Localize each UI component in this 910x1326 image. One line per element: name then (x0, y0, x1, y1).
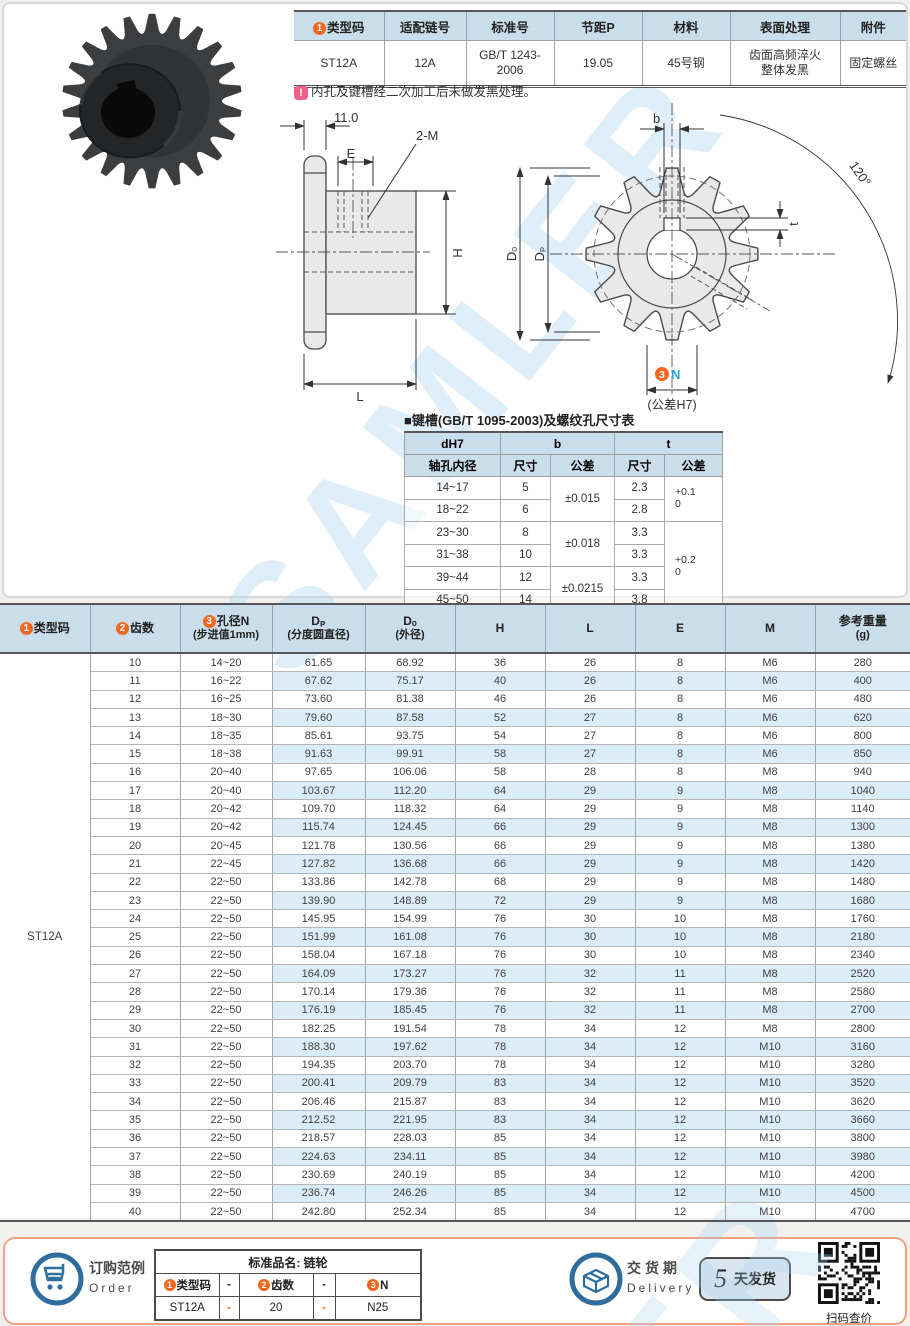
col-pitch: 节距P (554, 11, 642, 41)
dp-cell: 139.90 (272, 891, 365, 909)
bore-n-cell: 22~50 (180, 1129, 272, 1147)
bore-n-cell: 22~50 (180, 1001, 272, 1019)
table-row: 3222~50194.35203.70783412M103280 (0, 1056, 910, 1074)
bore-n-cell: 22~50 (180, 1111, 272, 1129)
dim-h-label: H (450, 248, 465, 257)
do-cell: 75.17 (365, 672, 455, 690)
t-size: 3.3 (615, 544, 665, 567)
l-cell: 34 (545, 1148, 635, 1166)
weight-cell: 3620 (815, 1093, 910, 1111)
order-dash: - (219, 1274, 239, 1297)
table-row: 2122~45127.82136.6866299M81420 (0, 855, 910, 873)
order-dash: - (313, 1297, 335, 1321)
do-cell: 167.18 (365, 946, 455, 964)
d-range: 23~30 (405, 522, 501, 545)
e-cell: 9 (635, 836, 725, 854)
dp-cell: 103.67 (272, 782, 365, 800)
col-accessory: 附件 (840, 11, 906, 41)
order-example-table: 标准品名: 链轮 1类型码 - 2齿数 - 3N ST12A - 20 - N2… (154, 1249, 422, 1321)
teeth-cell: 25 (90, 928, 180, 946)
weight-cell: 4500 (815, 1184, 910, 1202)
qr-code (818, 1242, 880, 1304)
t-size: 3.3 (615, 522, 665, 545)
do-cell: 179.36 (365, 983, 455, 1001)
h-cell: 85 (455, 1129, 545, 1147)
m-cell: M8 (725, 983, 815, 1001)
sprocket-photo-bore (101, 87, 155, 137)
m-cell: M6 (725, 727, 815, 745)
e-cell: 10 (635, 928, 725, 946)
table-row: 2422~50145.95154.99763010M81760 (0, 910, 910, 928)
m-cell: M10 (725, 1129, 815, 1147)
teeth-cell: 27 (90, 965, 180, 983)
col-type-code: 1类型码 (294, 11, 384, 41)
keyway-table-section: ■键槽(GB/T 1095-2003)及螺纹孔尺寸表 dH7 b t 轴孔内径 … (404, 410, 722, 613)
badge-1: 1 (313, 22, 326, 35)
order-v-type: ST12A (155, 1297, 219, 1321)
bore-n-cell: 20~45 (180, 836, 272, 854)
teeth-cell: 33 (90, 1074, 180, 1092)
weight-cell: 3660 (815, 1111, 910, 1129)
do-cell: 99.91 (365, 745, 455, 763)
col-dp: Dₚ(分度圆直径) (272, 604, 365, 653)
do-cell: 246.26 (365, 1184, 455, 1202)
table-row: 1620~4097.65106.0658288M8940 (0, 763, 910, 781)
m-cell: M8 (725, 836, 815, 854)
d-range: 39~44 (405, 567, 501, 590)
teeth-cell: 36 (90, 1129, 180, 1147)
m-cell: M8 (725, 763, 815, 781)
t-size: 2.3 (615, 477, 665, 500)
product-photo (14, 6, 264, 211)
dim-2m-label: 2-M (416, 128, 438, 143)
weight-cell: 4200 (815, 1166, 910, 1184)
do-cell: 148.89 (365, 891, 455, 909)
col-teeth: 2齿数 (90, 604, 180, 653)
b-size: 10 (501, 544, 551, 567)
l-cell: 32 (545, 1001, 635, 1019)
bore-n-cell: 22~50 (180, 1148, 272, 1166)
do-cell: 161.08 (365, 928, 455, 946)
weight-cell: 3280 (815, 1056, 910, 1074)
m-cell: M8 (725, 873, 815, 891)
e-cell: 8 (635, 727, 725, 745)
dp-cell: 188.30 (272, 1038, 365, 1056)
do-cell: 185.45 (365, 1001, 455, 1019)
do-cell: 81.38 (365, 690, 455, 708)
h-cell: 64 (455, 800, 545, 818)
table-row: 1920~42115.74124.4566299M81300 (0, 818, 910, 836)
m-cell: M8 (725, 965, 815, 983)
l-cell: 27 (545, 708, 635, 726)
weight-cell: 280 (815, 653, 910, 672)
keyway-row: 23~30 8 ±0.018 3.3 +0.20 (405, 522, 723, 545)
keyway-table: dH7 b t 轴孔内径 尺寸 公差 尺寸 公差 14~17 (404, 431, 723, 613)
weight-cell: 1760 (815, 910, 910, 928)
e-cell: 11 (635, 965, 725, 983)
bore-n-cell: 20~40 (180, 763, 272, 781)
m-cell: M10 (725, 1074, 815, 1092)
dp-cell: 73.60 (272, 690, 365, 708)
h-cell: 83 (455, 1093, 545, 1111)
accessory-value: 固定螺丝 (840, 41, 906, 87)
l-cell: 29 (545, 836, 635, 854)
teeth-cell: 31 (90, 1038, 180, 1056)
h-cell: 85 (455, 1202, 545, 1221)
delivery-icon (569, 1252, 623, 1306)
weight-cell: 3520 (815, 1074, 910, 1092)
e-cell: 9 (635, 891, 725, 909)
h-cell: 40 (455, 672, 545, 690)
bore-n-cell: 20~42 (180, 800, 272, 818)
m-cell: M6 (725, 690, 815, 708)
m-cell: M8 (725, 800, 815, 818)
m-cell: M10 (725, 1184, 815, 1202)
dp-cell: 200.41 (272, 1074, 365, 1092)
dp-cell: 109.70 (272, 800, 365, 818)
b-tol: ±0.015 (551, 477, 615, 522)
order-dash: - (219, 1297, 239, 1321)
table-row: 2222~50133.86142.7868299M81480 (0, 873, 910, 891)
e-cell: 11 (635, 1001, 725, 1019)
l-cell: 34 (545, 1056, 635, 1074)
badge-3: 3 (367, 1279, 379, 1291)
l-cell: 26 (545, 690, 635, 708)
m-cell: M10 (725, 1056, 815, 1074)
m-cell: M10 (725, 1111, 815, 1129)
dimension-table-section: SAMLER 1类型码 2齿数 3孔径N(步进值1mm) Dₚ(分度圆直径) D… (0, 603, 910, 1218)
badge-3: 3 (659, 370, 665, 381)
l-cell: 29 (545, 873, 635, 891)
e-cell: 8 (635, 763, 725, 781)
weight-cell: 2580 (815, 983, 910, 1001)
table-row: 2822~50170.14179.36763211M82580 (0, 983, 910, 1001)
h-cell: 76 (455, 1001, 545, 1019)
bore-n-cell: 20~42 (180, 818, 272, 836)
dp-cell: 91.63 (272, 745, 365, 763)
dim-t-label: t (786, 222, 801, 226)
bore-n-cell: 22~50 (180, 910, 272, 928)
do-cell: 93.75 (365, 727, 455, 745)
do-cell: 130.56 (365, 836, 455, 854)
teeth-cell: 39 (90, 1184, 180, 1202)
do-cell: 203.70 (365, 1056, 455, 1074)
do-cell: 191.54 (365, 1019, 455, 1037)
bore-n-cell: 14~20 (180, 653, 272, 672)
dp-cell: 79.60 (272, 708, 365, 726)
h-cell: 46 (455, 690, 545, 708)
teeth-cell: 19 (90, 818, 180, 836)
weight-cell: 2180 (815, 928, 910, 946)
col-chain-no: 适配链号 (384, 11, 466, 41)
cart-icon (30, 1252, 84, 1306)
order-header-row: 1类型码 - 2齿数 - 3N (155, 1274, 421, 1297)
teeth-cell: 24 (90, 910, 180, 928)
h-cell: 68 (455, 873, 545, 891)
t-size: 2.8 (615, 499, 665, 522)
side-plate (304, 156, 326, 349)
h-cell: 66 (455, 818, 545, 836)
h-cell: 85 (455, 1148, 545, 1166)
table-row: 2722~50164.09173.27763211M82520 (0, 965, 910, 983)
l-cell: 34 (545, 1166, 635, 1184)
delivery-days-label: 天发货 (734, 1269, 776, 1289)
l-cell: 29 (545, 818, 635, 836)
m-cell: M10 (725, 1166, 815, 1184)
teeth-cell: 23 (90, 891, 180, 909)
dim-e-label: E (347, 146, 356, 161)
do-cell: 118.32 (365, 800, 455, 818)
weight-cell: 850 (815, 745, 910, 763)
weight-cell: 2340 (815, 946, 910, 964)
l-cell: 32 (545, 965, 635, 983)
e-cell: 8 (635, 745, 725, 763)
e-cell: 8 (635, 690, 725, 708)
m-cell: M8 (725, 1001, 815, 1019)
dp-cell: 194.35 (272, 1056, 365, 1074)
l-cell: 30 (545, 910, 635, 928)
bore-n-cell: 22~50 (180, 1093, 272, 1111)
order-v-n: N25 (335, 1297, 421, 1321)
teeth-cell: 35 (90, 1111, 180, 1129)
h-cell: 78 (455, 1056, 545, 1074)
m-cell: M10 (725, 1202, 815, 1221)
h-cell: 83 (455, 1111, 545, 1129)
l-cell: 34 (545, 1019, 635, 1037)
teeth-cell: 40 (90, 1202, 180, 1221)
l-cell: 34 (545, 1093, 635, 1111)
e-cell: 12 (635, 1129, 725, 1147)
h-cell: 36 (455, 653, 545, 672)
do-cell: 142.78 (365, 873, 455, 891)
do-cell: 112.20 (365, 782, 455, 800)
b-size: 12 (501, 567, 551, 590)
table-row: 3722~50224.63234.11853412M103980 (0, 1148, 910, 1166)
badge-1: 1 (20, 622, 33, 635)
dp-cell: 61.65 (272, 653, 365, 672)
e-cell: 12 (635, 1038, 725, 1056)
col-surface: 表面处理 (730, 11, 840, 41)
table-row: 3322~50200.41209.79833412M103520 (0, 1074, 910, 1092)
n-label: N (671, 367, 680, 382)
e-cell: 9 (635, 782, 725, 800)
weight-cell: 1680 (815, 891, 910, 909)
dp-cell: 121.78 (272, 836, 365, 854)
d-range: 18~22 (405, 499, 501, 522)
e-cell: 10 (635, 946, 725, 964)
weight-cell: 2520 (815, 965, 910, 983)
material-value: 45号钢 (642, 41, 730, 87)
h-cell: 76 (455, 965, 545, 983)
l-cell: 29 (545, 891, 635, 909)
m-cell: M8 (725, 1019, 815, 1037)
teeth-cell: 34 (90, 1093, 180, 1111)
teeth-cell: 30 (90, 1019, 180, 1037)
m-cell: M8 (725, 946, 815, 964)
col-b-size: 尺寸 (501, 455, 551, 477)
bore-n-cell: 22~50 (180, 1019, 272, 1037)
l-cell: 34 (545, 1074, 635, 1092)
dp-cell: 133.86 (272, 873, 365, 891)
badge-1: 1 (164, 1279, 176, 1291)
col-material: 材料 (642, 11, 730, 41)
keyway-row: 14~17 5 ±0.015 2.3 +0.10 (405, 477, 723, 500)
weight-cell: 1140 (815, 800, 910, 818)
dp-cell: 230.69 (272, 1166, 365, 1184)
type-code-value: ST12A (294, 41, 384, 87)
side-hub (326, 191, 416, 314)
h-cell: 66 (455, 855, 545, 873)
front-view-drawing: b t Dₒ Dₚ 120° 3 N (公差H7) (490, 95, 910, 417)
order-delivery-section: 订购范例 Order 标准品名: 链轮 1类型码 - 2齿数 - 3N ST12… (3, 1237, 907, 1325)
l-cell: 34 (545, 1129, 635, 1147)
do-cell: 209.79 (365, 1074, 455, 1092)
e-cell: 12 (635, 1111, 725, 1129)
bore-n-cell: 22~50 (180, 965, 272, 983)
h-cell: 52 (455, 708, 545, 726)
e-cell: 12 (635, 1093, 725, 1111)
do-cell: 124.45 (365, 818, 455, 836)
t-tol: +0.20 (665, 522, 723, 613)
h-cell: 85 (455, 1166, 545, 1184)
teeth-cell: 18 (90, 800, 180, 818)
bore-n-cell: 22~50 (180, 1074, 272, 1092)
e-cell: 12 (635, 1019, 725, 1037)
l-cell: 29 (545, 782, 635, 800)
l-cell: 27 (545, 745, 635, 763)
bore-n-cell: 22~45 (180, 855, 272, 873)
do-cell: 68.92 (365, 653, 455, 672)
l-cell: 30 (545, 946, 635, 964)
h-cell: 66 (455, 836, 545, 854)
badge-2: 2 (116, 622, 129, 635)
do-cell: 215.87 (365, 1093, 455, 1111)
weight-cell: 4700 (815, 1202, 910, 1221)
table-row: 3422~50206.46215.87833412M103620 (0, 1093, 910, 1111)
e-cell: 12 (635, 1148, 725, 1166)
table-row: 3022~50182.25191.54783412M82800 (0, 1019, 910, 1037)
m-cell: M8 (725, 891, 815, 909)
h-cell: 72 (455, 891, 545, 909)
bore-n-cell: 18~35 (180, 727, 272, 745)
b-tol: ±0.018 (551, 522, 615, 567)
keyway-table-title: ■键槽(GB/T 1095-2003)及螺纹孔尺寸表 (404, 410, 722, 429)
surface-value: 齿面高频淬火整体发黑 (730, 41, 840, 87)
b-size: 6 (501, 499, 551, 522)
table-row: 3922~50236.74246.26853412M104500 (0, 1184, 910, 1202)
do-cell: 221.95 (365, 1111, 455, 1129)
bore-n-cell: 18~30 (180, 708, 272, 726)
dp-cell: 206.46 (272, 1093, 365, 1111)
e-cell: 9 (635, 818, 725, 836)
dim-b-label: b (653, 111, 660, 126)
table-row: 1318~3079.6087.5852278M6620 (0, 708, 910, 726)
order-h-n: 3N (335, 1274, 421, 1297)
col-h: H (455, 604, 545, 653)
table-row: 1116~2267.6275.1740268M6400 (0, 672, 910, 690)
dp-cell: 158.04 (272, 946, 365, 964)
teeth-cell: 14 (90, 727, 180, 745)
bore-n-cell: 22~50 (180, 1184, 272, 1202)
t-tol: +0.10 (665, 477, 723, 522)
d-range: 14~17 (405, 477, 501, 500)
m-cell: M6 (725, 708, 815, 726)
dp-cell: 224.63 (272, 1148, 365, 1166)
bore-n-cell: 16~25 (180, 690, 272, 708)
bore-n-cell: 22~50 (180, 873, 272, 891)
col-l: L (545, 604, 635, 653)
dp-cell: 127.82 (272, 855, 365, 873)
col-standard: 标准号 (466, 11, 554, 41)
teeth-cell: 32 (90, 1056, 180, 1074)
l-cell: 29 (545, 800, 635, 818)
l-cell: 27 (545, 727, 635, 745)
h-cell: 76 (455, 928, 545, 946)
table-row: 4022~50242.80252.34853412M104700 (0, 1202, 910, 1221)
teeth-cell: 26 (90, 946, 180, 964)
teeth-cell: 16 (90, 763, 180, 781)
table-row: 1820~42109.70118.3264299M81140 (0, 800, 910, 818)
do-cell: 252.34 (365, 1202, 455, 1221)
table-row: 2922~50176.19185.45763211M82700 (0, 1001, 910, 1019)
table-row: ST12A1014~2061.6568.9236268M6280 (0, 653, 910, 672)
dp-cell: 236.74 (272, 1184, 365, 1202)
dp-cell: 212.52 (272, 1111, 365, 1129)
e-cell: 8 (635, 708, 725, 726)
l-cell: 32 (545, 983, 635, 1001)
dp-cell: 242.80 (272, 1202, 365, 1221)
teeth-cell: 37 (90, 1148, 180, 1166)
table-row: 2322~50139.90148.8972299M81680 (0, 891, 910, 909)
teeth-cell: 22 (90, 873, 180, 891)
dp-cell: 218.57 (272, 1129, 365, 1147)
product-info-table: 1类型码 适配链号 标准号 节距P 材料 表面处理 附件 ST12A 12A G… (294, 10, 906, 88)
teeth-cell: 10 (90, 653, 180, 672)
dp-cell: 115.74 (272, 818, 365, 836)
dp-cell: 170.14 (272, 983, 365, 1001)
order-h-teeth: 2齿数 (239, 1274, 313, 1297)
dp-cell: 176.19 (272, 1001, 365, 1019)
col-t-size: 尺寸 (615, 455, 665, 477)
teeth-cell: 13 (90, 708, 180, 726)
teeth-cell: 15 (90, 745, 180, 763)
l-cell: 28 (545, 763, 635, 781)
m-cell: M6 (725, 653, 815, 672)
table-row: 2522~50151.99161.08763010M82180 (0, 928, 910, 946)
col-b-group: b (501, 432, 615, 455)
pitch-value: 19.05 (554, 41, 642, 87)
e-cell: 12 (635, 1056, 725, 1074)
bore-n-cell: 22~50 (180, 1056, 272, 1074)
e-cell: 8 (635, 672, 725, 690)
h-cell: 64 (455, 782, 545, 800)
bore-n-cell: 20~40 (180, 782, 272, 800)
do-cell: 154.99 (365, 910, 455, 928)
teeth-cell: 12 (90, 690, 180, 708)
weight-cell: 2700 (815, 1001, 910, 1019)
l-cell: 26 (545, 672, 635, 690)
h-cell: 58 (455, 745, 545, 763)
dp-cell: 97.65 (272, 763, 365, 781)
dp-cell: 164.09 (272, 965, 365, 983)
weight-cell: 1040 (815, 782, 910, 800)
bore-n-cell: 22~50 (180, 1202, 272, 1221)
dp-cell: 182.25 (272, 1019, 365, 1037)
standard-value: GB/T 1243-2006 (466, 41, 554, 87)
col-b-tol: 公差 (551, 455, 615, 477)
weight-cell: 620 (815, 708, 910, 726)
h-cell: 54 (455, 727, 545, 745)
